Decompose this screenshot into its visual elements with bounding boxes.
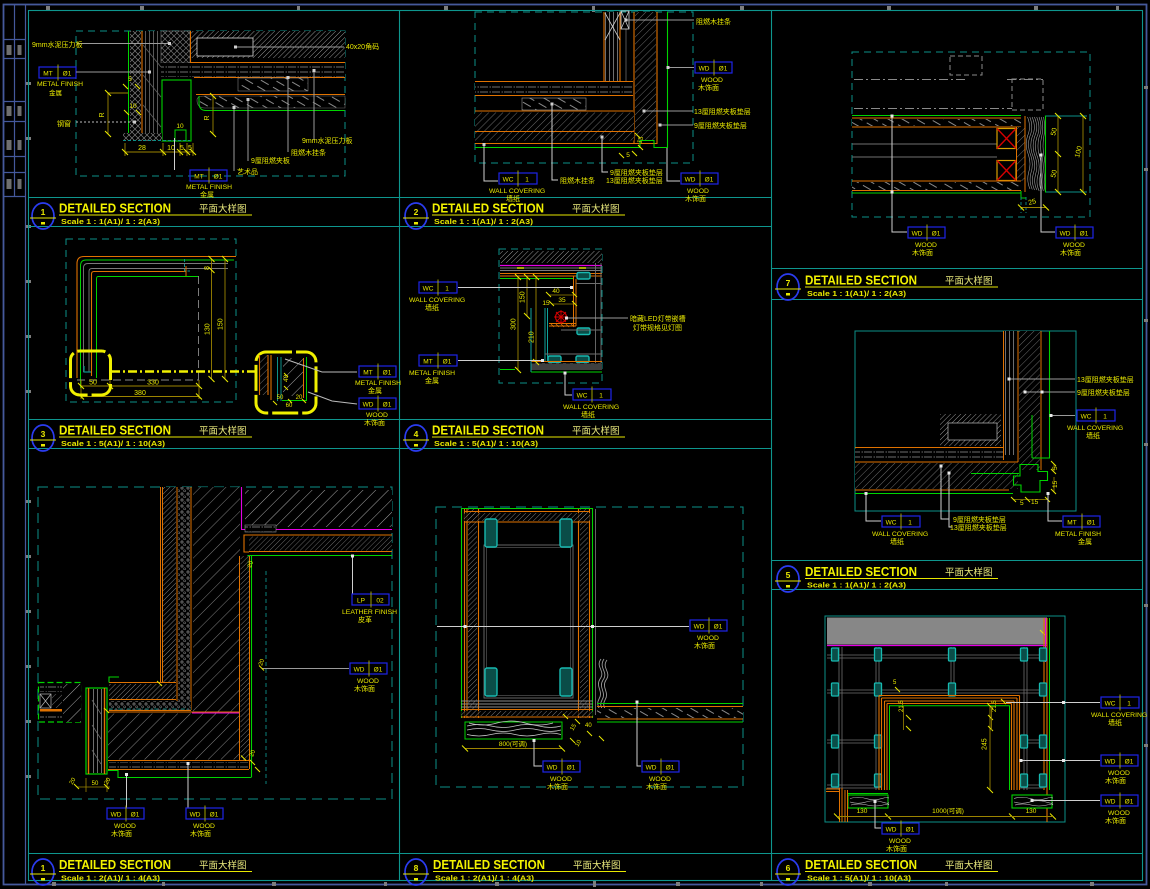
svg-text:Ø1: Ø1 bbox=[714, 624, 723, 631]
svg-text:Ø1: Ø1 bbox=[906, 827, 915, 834]
svg-text:WD: WD bbox=[363, 402, 374, 409]
svg-text:墙纸: 墙纸 bbox=[581, 410, 595, 419]
svg-text:WD: WD bbox=[685, 177, 696, 184]
svg-text:DETAILED SECTION: DETAILED SECTION bbox=[805, 857, 917, 872]
svg-text:Ø1: Ø1 bbox=[567, 765, 576, 772]
svg-text:380: 380 bbox=[134, 390, 146, 397]
svg-text:平面大样图: 平面大样图 bbox=[572, 203, 620, 215]
svg-text:9厘阻燃夹板垫层: 9厘阻燃夹板垫层 bbox=[1077, 388, 1130, 397]
svg-text:WOOD: WOOD bbox=[701, 77, 723, 84]
svg-text:WD: WD bbox=[1105, 759, 1116, 766]
svg-text:木饰面: 木饰面 bbox=[912, 248, 933, 257]
svg-text:40x20角码: 40x20角码 bbox=[346, 42, 379, 51]
svg-text:木饰面: 木饰面 bbox=[886, 844, 907, 853]
svg-text:WD: WD bbox=[694, 624, 705, 631]
svg-text:WD: WD bbox=[1060, 231, 1071, 238]
svg-text:5: 5 bbox=[128, 76, 132, 83]
svg-text:Ø1: Ø1 bbox=[719, 66, 728, 73]
svg-text:5: 5 bbox=[180, 145, 184, 152]
svg-text:40: 40 bbox=[552, 288, 560, 295]
svg-text:15: 15 bbox=[542, 300, 550, 307]
svg-text:13厘阻燃夹板垫层: 13厘阻燃夹板垫层 bbox=[694, 107, 751, 116]
svg-text:R: R bbox=[204, 115, 211, 120]
svg-text:60: 60 bbox=[286, 403, 293, 409]
svg-text:DETAILED SECTION: DETAILED SECTION bbox=[59, 423, 171, 438]
svg-text:平面大样图: 平面大样图 bbox=[945, 275, 993, 287]
svg-text:1: 1 bbox=[445, 286, 449, 293]
svg-text:Scale 1 : 2(A1)/ 1 : 4(A3): Scale 1 : 2(A1)/ 1 : 4(A3) bbox=[61, 874, 161, 883]
svg-text:Ø1: Ø1 bbox=[443, 359, 452, 366]
svg-text:WD: WD bbox=[190, 812, 201, 819]
svg-text:木饰面: 木饰面 bbox=[547, 782, 568, 791]
svg-text:平面大样图: 平面大样图 bbox=[945, 860, 993, 872]
svg-text:WD: WD bbox=[886, 827, 897, 834]
svg-text:150: 150 bbox=[218, 318, 225, 330]
svg-text:Scale 1 : 5(A1)/ 1 : 10(A3): Scale 1 : 5(A1)/ 1 : 10(A3) bbox=[61, 439, 166, 448]
svg-text:150: 150 bbox=[520, 291, 527, 303]
svg-text:1: 1 bbox=[599, 393, 603, 400]
svg-text:02: 02 bbox=[376, 598, 384, 605]
svg-text:Ø1: Ø1 bbox=[666, 765, 675, 772]
svg-text:平面大样图: 平面大样图 bbox=[573, 860, 621, 872]
svg-text:METAL FINISH: METAL FINISH bbox=[1055, 531, 1101, 538]
svg-text:木饰面: 木饰面 bbox=[685, 194, 706, 203]
svg-text:Ø1: Ø1 bbox=[131, 812, 140, 819]
svg-text:13厘阻燃夹板垫层: 13厘阻燃夹板垫层 bbox=[950, 523, 1007, 532]
svg-text:WALL COVERING: WALL COVERING bbox=[1067, 425, 1123, 432]
svg-text:墙纸: 墙纸 bbox=[1086, 431, 1100, 440]
svg-text:R: R bbox=[99, 112, 106, 117]
svg-text:1: 1 bbox=[1103, 414, 1107, 421]
svg-text:35: 35 bbox=[558, 297, 566, 304]
svg-text:钢窗: 钢窗 bbox=[57, 119, 71, 128]
svg-text:50: 50 bbox=[277, 395, 284, 401]
svg-text:9mm水泥压力板: 9mm水泥压力板 bbox=[32, 40, 83, 49]
svg-text:艺术品: 艺术品 bbox=[237, 167, 258, 176]
svg-text:木饰面: 木饰面 bbox=[111, 829, 132, 838]
svg-text:WC: WC bbox=[423, 286, 434, 293]
svg-text:木饰面: 木饰面 bbox=[354, 684, 375, 693]
svg-text:Ø1: Ø1 bbox=[932, 231, 941, 238]
svg-text:Ø1: Ø1 bbox=[383, 402, 392, 409]
svg-text:1: 1 bbox=[41, 863, 46, 873]
svg-text:灯带规格见灯图: 灯带规格见灯图 bbox=[633, 323, 682, 332]
svg-text:130: 130 bbox=[205, 323, 212, 335]
svg-text:Scale 1 : 5(A1)/ 1 : 10(A3): Scale 1 : 5(A1)/ 1 : 10(A3) bbox=[434, 439, 539, 448]
svg-text:3: 3 bbox=[41, 429, 46, 439]
svg-text:4: 4 bbox=[414, 429, 419, 439]
svg-text:330: 330 bbox=[147, 380, 159, 387]
svg-text:130: 130 bbox=[1026, 808, 1037, 815]
svg-text:245: 245 bbox=[982, 738, 989, 750]
svg-text:10: 10 bbox=[129, 103, 137, 110]
svg-text:平面大样图: 平面大样图 bbox=[572, 425, 620, 437]
svg-text:9厘阻燃夹板垫层: 9厘阻燃夹板垫层 bbox=[953, 515, 1006, 524]
svg-text:WD: WD bbox=[547, 765, 558, 772]
svg-text:WALL COVERING: WALL COVERING bbox=[409, 297, 465, 304]
svg-text:WD: WD bbox=[646, 765, 657, 772]
svg-text:WOOD: WOOD bbox=[915, 242, 937, 249]
svg-text:13厘阻燃夹板垫层: 13厘阻燃夹板垫层 bbox=[1077, 375, 1134, 384]
svg-text:LP: LP bbox=[357, 598, 365, 605]
svg-text:WD: WD bbox=[699, 66, 710, 73]
svg-text:9厘阻燃夹板: 9厘阻燃夹板 bbox=[251, 156, 290, 165]
svg-text:METAL FINISH: METAL FINISH bbox=[37, 81, 83, 88]
svg-text:皮革: 皮革 bbox=[358, 615, 372, 624]
svg-text:WC: WC bbox=[1081, 414, 1092, 421]
svg-text:WD: WD bbox=[111, 812, 122, 819]
svg-text:WALL COVERING: WALL COVERING bbox=[563, 404, 619, 411]
svg-text:平面大样图: 平面大样图 bbox=[199, 203, 247, 215]
svg-text:Scale 1 : 1(A1)/ 1 : 2(A3): Scale 1 : 1(A1)/ 1 : 2(A3) bbox=[807, 581, 907, 590]
svg-text:阻燃木挂条: 阻燃木挂条 bbox=[560, 176, 595, 185]
svg-text:WALL COVERING: WALL COVERING bbox=[489, 188, 545, 195]
svg-text:WALL COVERING: WALL COVERING bbox=[872, 531, 928, 538]
svg-text:METAL FINISH: METAL FINISH bbox=[355, 380, 401, 387]
svg-text:MT: MT bbox=[1067, 520, 1076, 527]
svg-text:9厘阻燃夹板垫层: 9厘阻燃夹板垫层 bbox=[610, 168, 663, 177]
svg-text:DETAILED SECTION: DETAILED SECTION bbox=[432, 201, 544, 216]
svg-text:10: 10 bbox=[167, 145, 175, 152]
svg-text:WOOD: WOOD bbox=[114, 823, 136, 830]
svg-text:9mm水泥压力板: 9mm水泥压力板 bbox=[302, 136, 353, 145]
svg-text:Scale 1 : 1(A1)/ 1 : 2(A3): Scale 1 : 1(A1)/ 1 : 2(A3) bbox=[61, 217, 161, 226]
svg-text:平面大样图: 平面大样图 bbox=[199, 860, 247, 872]
svg-text:WD: WD bbox=[1105, 799, 1116, 806]
svg-text:1: 1 bbox=[525, 177, 529, 184]
svg-text:WD: WD bbox=[912, 231, 923, 238]
svg-text:墙纸: 墙纸 bbox=[425, 303, 439, 312]
svg-text:Scale 1 : 1(A1)/ 1 : 2(A3): Scale 1 : 1(A1)/ 1 : 2(A3) bbox=[807, 289, 907, 298]
svg-text:300: 300 bbox=[511, 318, 518, 330]
svg-text:WOOD: WOOD bbox=[1063, 242, 1085, 249]
svg-text:15: 15 bbox=[1031, 499, 1039, 506]
svg-text:墙纸: 墙纸 bbox=[1108, 718, 1122, 727]
svg-text:WOOD: WOOD bbox=[550, 776, 572, 783]
svg-text:15: 15 bbox=[1052, 480, 1059, 488]
svg-text:暗藏LED灯带嵌槽: 暗藏LED灯带嵌槽 bbox=[630, 314, 686, 323]
svg-text:金属: 金属 bbox=[200, 190, 214, 199]
svg-text:木饰面: 木饰面 bbox=[190, 829, 211, 838]
svg-text:5: 5 bbox=[786, 570, 791, 580]
svg-text:WC: WC bbox=[503, 177, 514, 184]
svg-text:平面大样图: 平面大样图 bbox=[199, 425, 247, 437]
svg-text:1: 1 bbox=[908, 520, 912, 527]
svg-text:DETAILED SECTION: DETAILED SECTION bbox=[805, 564, 917, 579]
svg-text:Ø1: Ø1 bbox=[210, 812, 219, 819]
svg-text:5: 5 bbox=[626, 152, 630, 159]
svg-text:WOOD: WOOD bbox=[1108, 770, 1130, 777]
svg-text:WOOD: WOOD bbox=[687, 188, 709, 195]
svg-text:METAL FINISH: METAL FINISH bbox=[186, 184, 232, 191]
svg-text:MT: MT bbox=[194, 174, 203, 181]
svg-text:DETAILED SECTION: DETAILED SECTION bbox=[59, 857, 171, 872]
svg-text:9厘阻燃夹板垫层: 9厘阻燃夹板垫层 bbox=[694, 121, 747, 130]
svg-text:平面大样图: 平面大样图 bbox=[945, 567, 993, 579]
svg-text:21.5: 21.5 bbox=[899, 700, 905, 712]
svg-text:WOOD: WOOD bbox=[1108, 810, 1130, 817]
svg-text:木饰面: 木饰面 bbox=[364, 418, 385, 427]
svg-text:DETAILED SECTION: DETAILED SECTION bbox=[433, 857, 545, 872]
svg-text:6: 6 bbox=[786, 863, 791, 873]
svg-text:7: 7 bbox=[786, 278, 791, 288]
svg-text:墙纸: 墙纸 bbox=[890, 537, 904, 546]
svg-text:WD: WD bbox=[354, 667, 365, 674]
svg-text:WOOD: WOOD bbox=[649, 776, 671, 783]
svg-text:Scale 1 : 2(A1)/ 1 : 4(A3): Scale 1 : 2(A1)/ 1 : 4(A3) bbox=[435, 874, 535, 883]
svg-text:10: 10 bbox=[176, 123, 184, 130]
svg-text:Scale 1 : 5(A1)/ 1 : 10(A3): Scale 1 : 5(A1)/ 1 : 10(A3) bbox=[807, 874, 912, 883]
svg-text:Ø1: Ø1 bbox=[1087, 520, 1096, 527]
svg-text:阻燃木挂条: 阻燃木挂条 bbox=[696, 17, 731, 26]
svg-text:DETAILED SECTION: DETAILED SECTION bbox=[805, 273, 917, 288]
svg-text:金属: 金属 bbox=[425, 376, 439, 385]
svg-text:WOOD: WOOD bbox=[357, 678, 379, 685]
svg-text:130: 130 bbox=[857, 808, 868, 815]
svg-text:50: 50 bbox=[92, 781, 99, 787]
svg-text:MT: MT bbox=[43, 71, 52, 78]
svg-text:木饰面: 木饰面 bbox=[646, 782, 667, 791]
svg-text:LEATHER FINISH: LEATHER FINISH bbox=[342, 609, 397, 616]
svg-text:MT: MT bbox=[363, 370, 372, 377]
svg-text:DETAILED SECTION: DETAILED SECTION bbox=[59, 201, 171, 216]
svg-text:WC: WC bbox=[577, 393, 588, 400]
svg-text:Ø1: Ø1 bbox=[63, 71, 72, 78]
svg-text:1000(可调): 1000(可调) bbox=[932, 806, 964, 815]
svg-text:40: 40 bbox=[585, 723, 592, 729]
svg-text:阻燃木挂条: 阻燃木挂条 bbox=[291, 148, 326, 157]
svg-text:Ø1: Ø1 bbox=[383, 370, 392, 377]
svg-text:金属: 金属 bbox=[49, 88, 62, 97]
svg-text:WC: WC bbox=[1105, 701, 1116, 708]
svg-text:Ø1: Ø1 bbox=[1125, 759, 1134, 766]
svg-text:墙纸: 墙纸 bbox=[506, 194, 520, 203]
svg-text:DETAILED SECTION: DETAILED SECTION bbox=[432, 423, 544, 438]
svg-text:木饰面: 木饰面 bbox=[1060, 248, 1081, 257]
svg-text:WALL COVERING: WALL COVERING bbox=[1091, 712, 1147, 719]
svg-text:800(可调): 800(可调) bbox=[499, 739, 527, 748]
svg-text:28: 28 bbox=[138, 145, 146, 152]
svg-text:210: 210 bbox=[529, 331, 536, 343]
svg-text:Scale 1 : 1(A1)/ 1 : 2(A3): Scale 1 : 1(A1)/ 1 : 2(A3) bbox=[434, 217, 534, 226]
svg-text:WC: WC bbox=[886, 520, 897, 527]
svg-text:WOOD: WOOD bbox=[193, 823, 215, 830]
svg-text:金属: 金属 bbox=[1078, 537, 1092, 546]
svg-text:WOOD: WOOD bbox=[697, 635, 719, 642]
svg-text:木饰面: 木饰面 bbox=[698, 83, 719, 92]
svg-text:WOOD: WOOD bbox=[889, 838, 911, 845]
svg-text:金属: 金属 bbox=[368, 386, 382, 395]
svg-text:5: 5 bbox=[1052, 466, 1059, 470]
svg-text:2: 2 bbox=[414, 207, 419, 217]
svg-text:8: 8 bbox=[204, 266, 211, 270]
svg-text:木饰面: 木饰面 bbox=[694, 641, 715, 650]
svg-text:WOOD: WOOD bbox=[366, 412, 388, 419]
svg-text:50: 50 bbox=[89, 380, 97, 387]
svg-text:木饰面: 木饰面 bbox=[1105, 816, 1126, 825]
svg-text:Ø1: Ø1 bbox=[1080, 231, 1089, 238]
svg-text:METAL FINISH: METAL FINISH bbox=[409, 370, 455, 377]
svg-text:1: 1 bbox=[41, 207, 46, 217]
svg-text:Ø1: Ø1 bbox=[1125, 799, 1134, 806]
svg-text:21.5: 21.5 bbox=[992, 700, 998, 712]
svg-text:8: 8 bbox=[414, 863, 419, 873]
svg-text:1: 1 bbox=[1127, 701, 1131, 708]
svg-text:20: 20 bbox=[296, 395, 303, 401]
svg-text:Ø1: Ø1 bbox=[705, 177, 714, 184]
svg-text:5: 5 bbox=[1020, 500, 1024, 507]
svg-text:MT: MT bbox=[423, 359, 432, 366]
svg-text:木饰面: 木饰面 bbox=[1105, 776, 1126, 785]
svg-text:13厘阻燃夹板垫层: 13厘阻燃夹板垫层 bbox=[606, 176, 663, 185]
svg-text:Ø1: Ø1 bbox=[374, 667, 383, 674]
svg-text:Ø1: Ø1 bbox=[214, 174, 223, 181]
